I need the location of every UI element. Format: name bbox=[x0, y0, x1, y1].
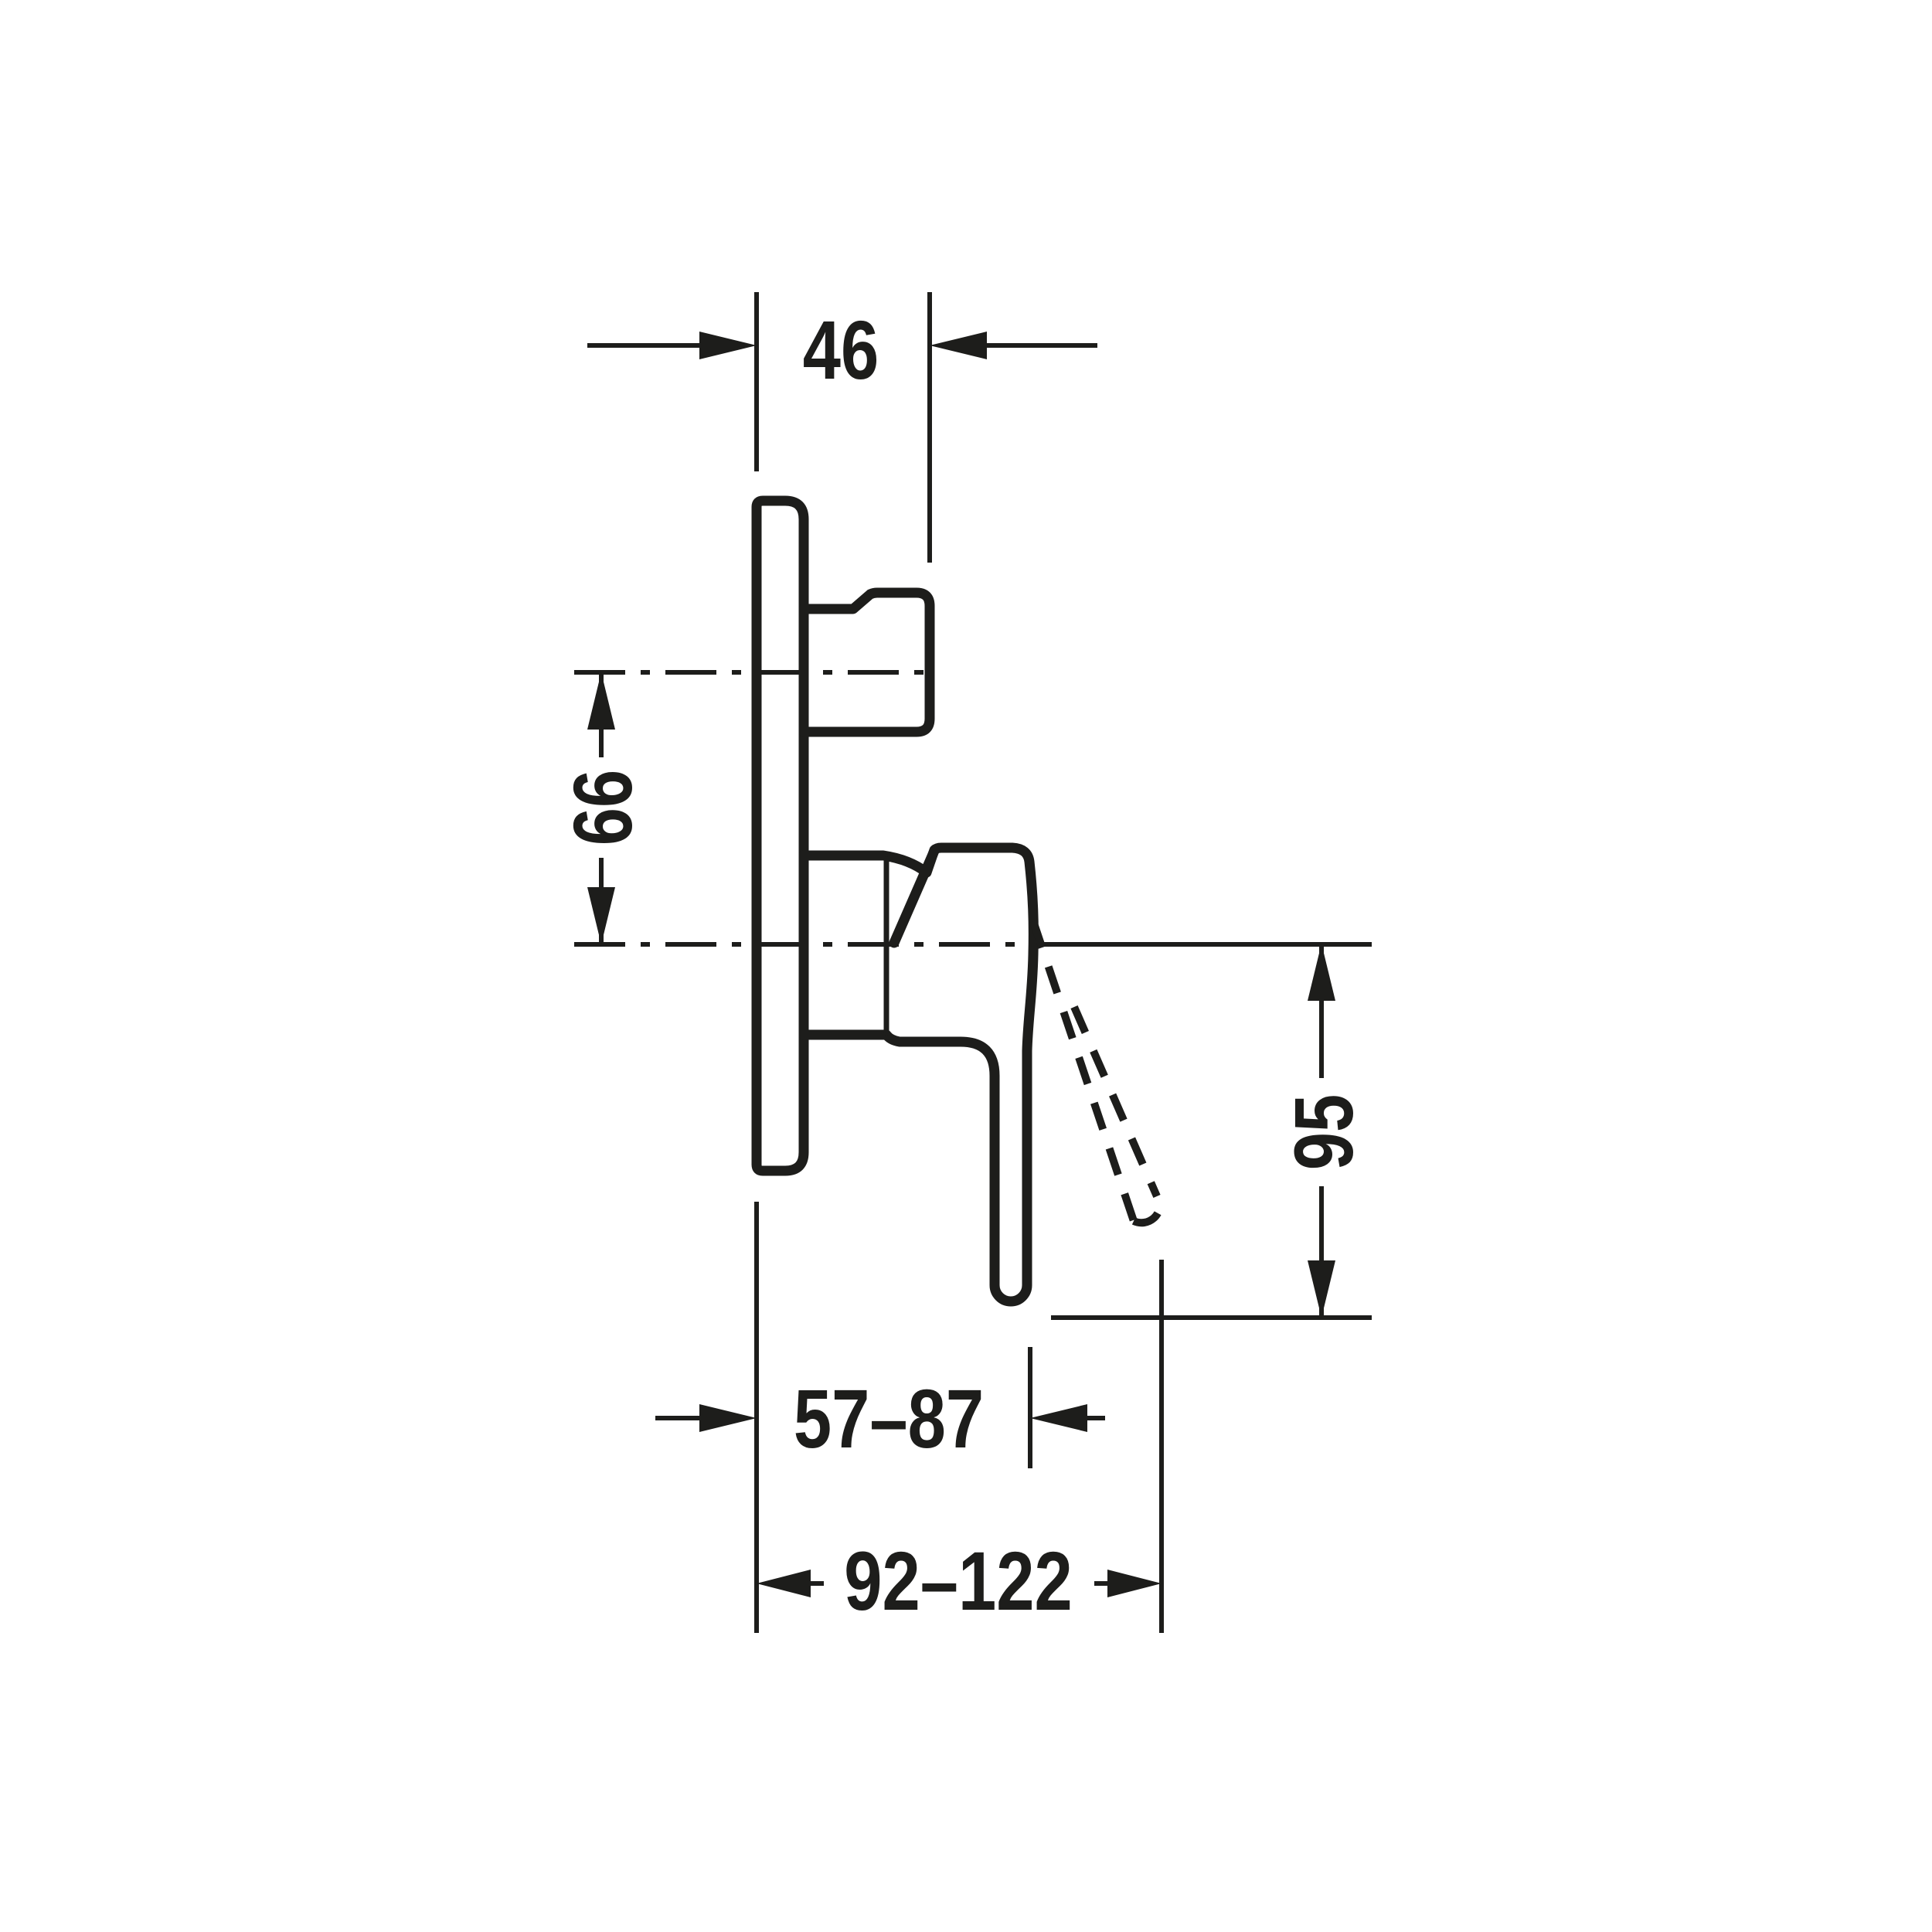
dim-92-122-arrow-right bbox=[1107, 1570, 1162, 1597]
dimension-46: 46 bbox=[587, 292, 1097, 563]
dim-95-label: 95 bbox=[1277, 1094, 1370, 1170]
dim-57-87-arrow-right bbox=[1030, 1404, 1087, 1432]
dim-95-arrow-up bbox=[1308, 944, 1335, 1001]
dim-95-arrow-down bbox=[1308, 1260, 1335, 1318]
dim-66-arrow-down bbox=[587, 887, 615, 944]
technical-drawing-canvas: 46 66 95 57–87 92–122 bbox=[0, 0, 1932, 1932]
dimension-95: 95 bbox=[1051, 944, 1372, 1318]
diverter-knob-outline bbox=[804, 593, 930, 732]
open-lever-back-dashed-line bbox=[1033, 921, 1134, 1221]
dim-92-122-label: 92–122 bbox=[844, 1535, 1072, 1628]
dim-66-arrow-up bbox=[587, 672, 615, 730]
dim-57-87-arrow-left bbox=[699, 1404, 757, 1432]
dim-46-arrow-left bbox=[699, 332, 757, 359]
dim-92-122-arrow-left bbox=[757, 1570, 811, 1597]
open-lever-tip-dashed-arc bbox=[1134, 1199, 1160, 1223]
fixture-body bbox=[757, 501, 1033, 1301]
dimension-66: 66 bbox=[556, 672, 649, 944]
lever-open-position-dashed bbox=[1033, 921, 1160, 1223]
dim-66-label: 66 bbox=[556, 770, 649, 845]
mixer-dimension-drawing: 46 66 95 57–87 92–122 bbox=[0, 0, 1932, 1932]
wall-plate-outline bbox=[757, 501, 804, 1171]
dim-46-arrow-right bbox=[930, 332, 987, 359]
dim-57-87-label: 57–87 bbox=[794, 1372, 984, 1465]
dim-46-label: 46 bbox=[803, 304, 879, 396]
lever-handle-outline bbox=[804, 848, 1033, 1301]
